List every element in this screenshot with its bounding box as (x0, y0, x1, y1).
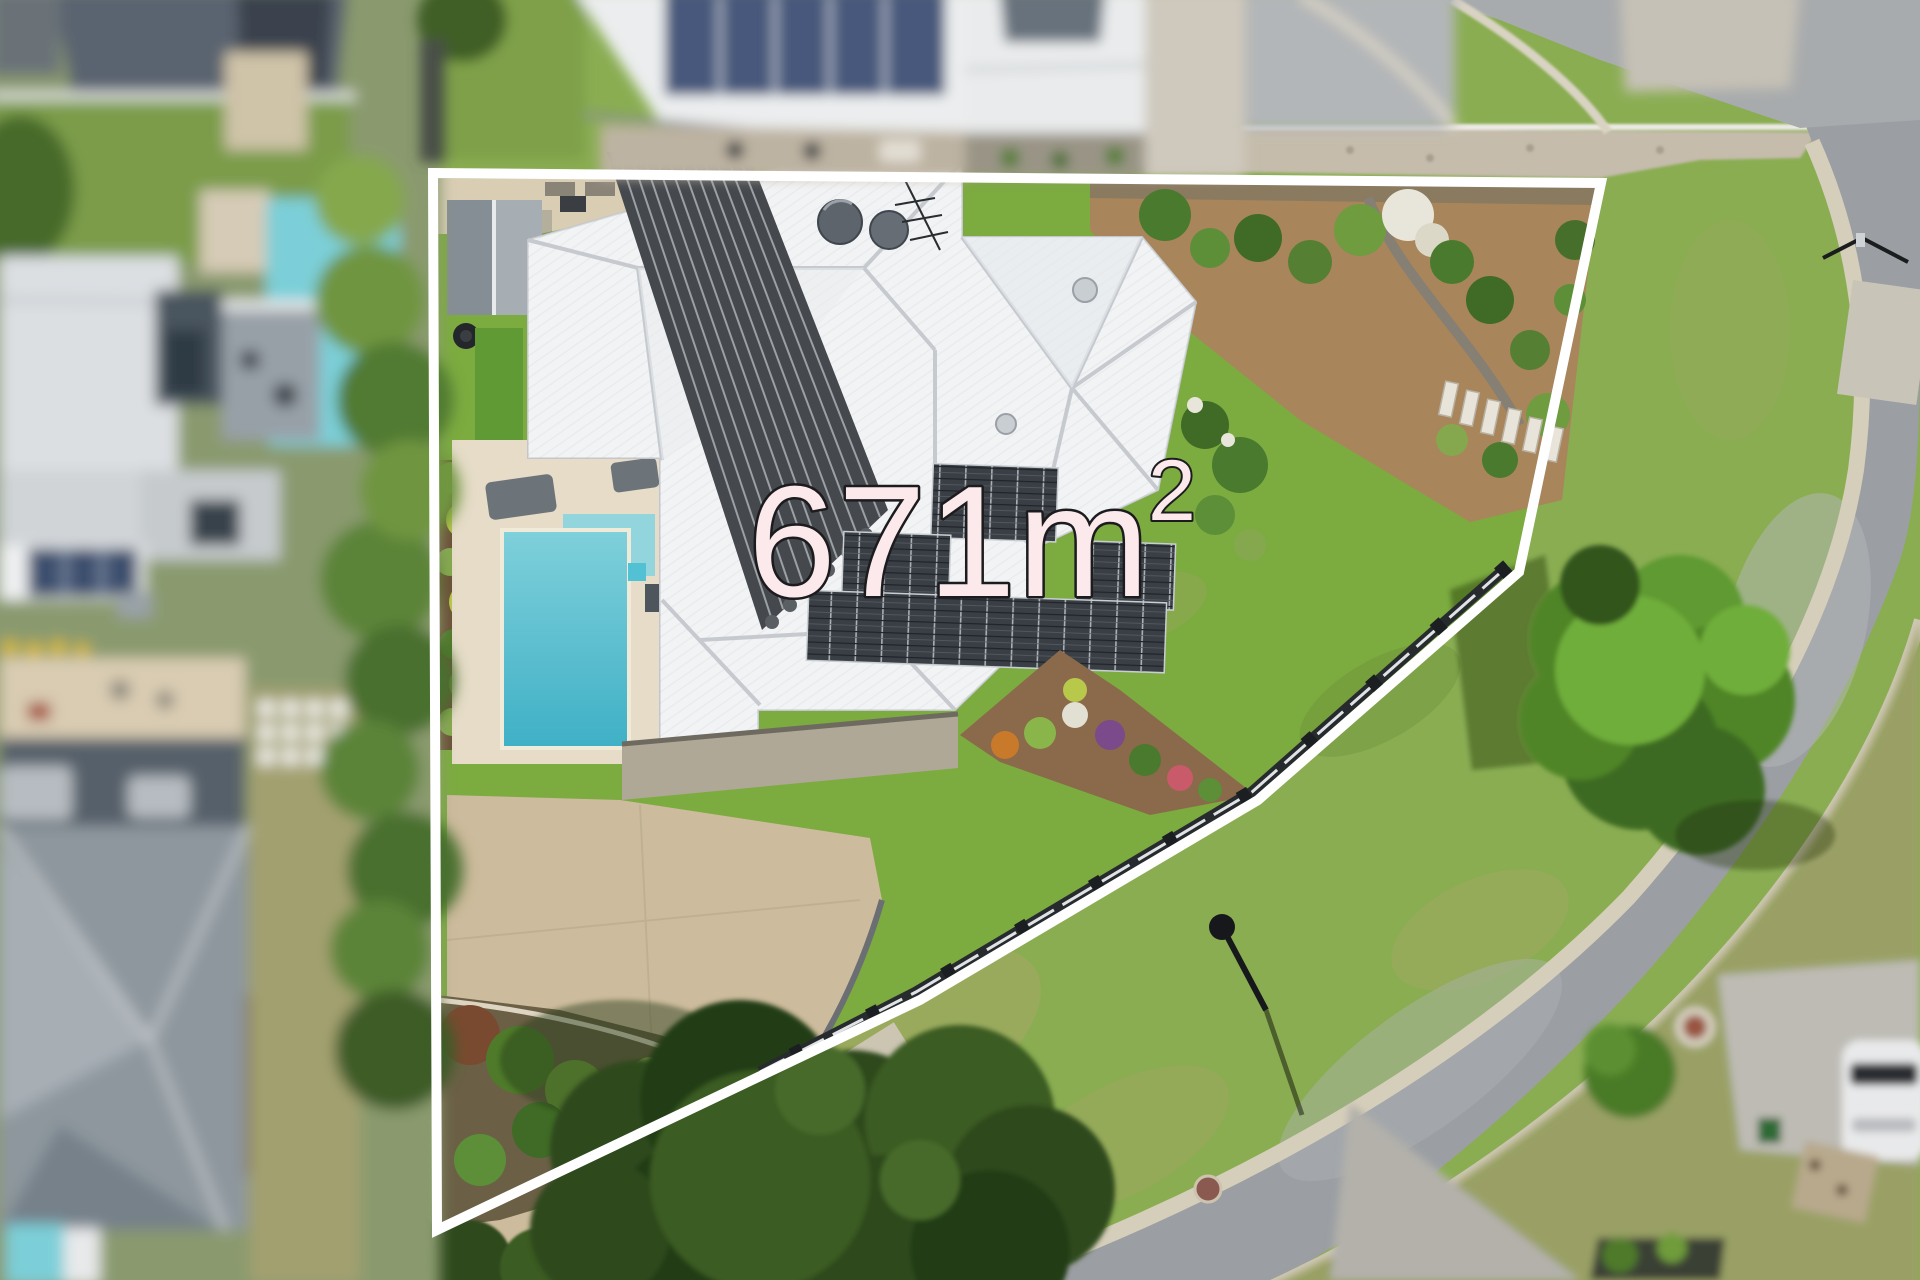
bbq (560, 196, 586, 212)
area-label: 671m 2 (748, 443, 1196, 630)
area-label-exponent: 2 (1148, 443, 1196, 539)
utility-box (1758, 1118, 1781, 1143)
roof-vent (1073, 278, 1097, 302)
roof-vent (996, 414, 1016, 434)
pool-area (452, 440, 672, 764)
aerial-property-photo: 671m 2 (0, 0, 1920, 1280)
area-label-text: 671m (748, 454, 1151, 630)
parked-car (1842, 1040, 1920, 1160)
neighborhood-left-blurred (0, 0, 463, 1280)
artificial-turf (475, 328, 523, 454)
swimming-pool (502, 530, 629, 748)
manhole-cover (1195, 1176, 1221, 1202)
